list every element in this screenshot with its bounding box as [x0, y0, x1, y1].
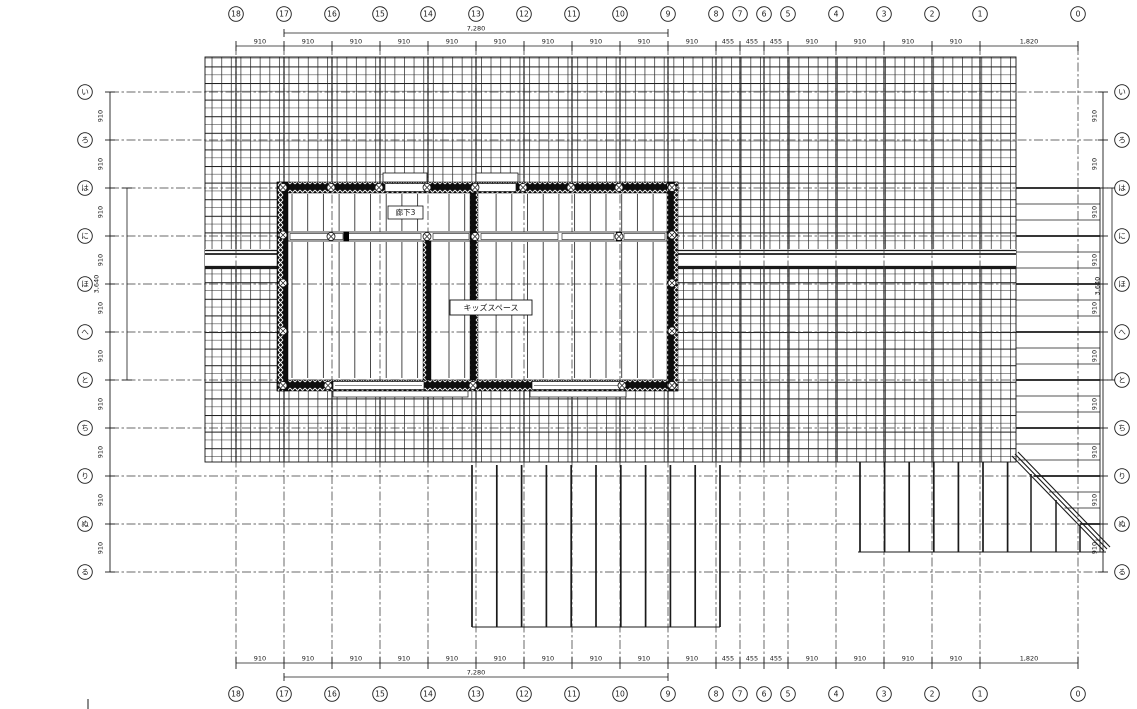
dim-text-right: 910 — [1091, 158, 1099, 170]
column-axis-bubble-top-3: 3 — [877, 7, 892, 22]
column-axis-bubble-bottom-12: 12 — [517, 687, 532, 702]
post-symbol — [375, 184, 383, 192]
post-symbol — [279, 231, 287, 239]
svg-text:1: 1 — [978, 690, 983, 699]
row-axis-bubble-left-8: り — [78, 469, 93, 484]
dim-text-left: 910 — [97, 254, 105, 266]
dim-overall-text-top: 7,280 — [467, 25, 486, 33]
svg-text:14: 14 — [423, 690, 433, 699]
column-axis-bubble-bottom-3: 3 — [877, 687, 892, 702]
row-axis-bubble-left-0: い — [78, 85, 93, 100]
svg-text:9: 9 — [666, 690, 671, 699]
svg-text:13: 13 — [471, 690, 481, 699]
dim-text-left: 910 — [97, 446, 105, 458]
svg-text:12: 12 — [519, 690, 529, 699]
column-axis-bubble-top-16: 16 — [325, 7, 340, 22]
row-axis-bubble-right-6: と — [1115, 373, 1130, 388]
svg-text:2: 2 — [930, 690, 935, 699]
svg-text:ぬ: ぬ — [81, 520, 89, 529]
svg-text:16: 16 — [327, 690, 337, 699]
dim-text-top: 910 — [302, 38, 314, 46]
row-axis-bubble-left-9: ぬ — [78, 517, 93, 532]
dim-text-right: 910 — [1091, 110, 1099, 122]
svg-text:へ: へ — [1118, 328, 1126, 337]
dim-text-top: 910 — [446, 38, 458, 46]
post-symbol — [668, 184, 676, 192]
dim-text-right: 910 — [1091, 542, 1099, 554]
row-axis-bubble-left-4: ほ — [78, 277, 93, 292]
column-axis-bubble-top-15: 15 — [373, 7, 388, 22]
svg-text:13: 13 — [471, 10, 481, 19]
dim-text-bottom: 910 — [302, 655, 314, 663]
entry-slab — [383, 173, 427, 182]
column-axis-bubble-top-0: 0 — [1071, 7, 1086, 22]
post-symbol — [423, 233, 431, 241]
row-axis-bubble-left-2: は — [78, 181, 93, 196]
dim-text-left: 910 — [97, 302, 105, 314]
svg-text:に: に — [81, 232, 89, 241]
row-axis-bubble-left-3: に — [78, 229, 93, 244]
dim-text-bottom: 910 — [902, 655, 914, 663]
svg-text:5: 5 — [786, 10, 791, 19]
dim-text-top: 455 — [746, 38, 758, 46]
dim-text-left: 910 — [97, 494, 105, 506]
column-axis-bubble-top-13: 13 — [469, 7, 484, 22]
post-symbol — [668, 327, 676, 335]
row-axis-bubble-right-0: い — [1115, 85, 1130, 100]
column-axis-bubble-bottom-11: 11 — [565, 687, 580, 702]
post-symbol — [324, 382, 332, 390]
post-symbol — [327, 233, 335, 241]
column-axis-bubble-bottom-18: 18 — [229, 687, 244, 702]
dim-text-top: 910 — [350, 38, 362, 46]
column-axis-bubble-top-7: 7 — [733, 7, 748, 22]
svg-text:9: 9 — [666, 10, 671, 19]
row-axis-bubble-left-7: ち — [78, 421, 93, 436]
svg-text:0: 0 — [1076, 10, 1081, 19]
column-axis-bubble-top-6: 6 — [757, 7, 772, 22]
svg-text:り: り — [81, 472, 89, 481]
row-axis-bubble-right-7: ち — [1115, 421, 1130, 436]
dim-text-right: 910 — [1091, 446, 1099, 458]
svg-text:3: 3 — [882, 10, 887, 19]
svg-text:と: と — [81, 376, 89, 385]
dim-text-bottom: 455 — [746, 655, 758, 663]
post-symbol — [327, 184, 335, 192]
dim-overall-text-right: 3,640 — [1094, 277, 1102, 296]
column-axis-bubble-bottom-10: 10 — [613, 687, 628, 702]
column-axis-bubble-top-12: 12 — [517, 7, 532, 22]
svg-text:7: 7 — [738, 690, 743, 699]
eaves-band — [678, 249, 1016, 266]
row-axis-bubble-right-8: り — [1115, 469, 1130, 484]
svg-text:ち: ち — [81, 424, 89, 433]
dim-text-right: 910 — [1091, 254, 1099, 266]
svg-text:ち: ち — [1118, 424, 1126, 433]
eaves-band — [205, 249, 277, 266]
dim-text-left: 910 — [97, 542, 105, 554]
dim-text-bottom: 910 — [542, 655, 554, 663]
svg-text:ほ: ほ — [81, 280, 89, 289]
column-axis-bubble-top-4: 4 — [829, 7, 844, 22]
post-symbol — [279, 184, 287, 192]
dim-text-bottom: 1,820 — [1020, 655, 1039, 663]
column-axis-bubble-top-17: 17 — [277, 7, 292, 22]
entry-slab — [333, 391, 468, 397]
dim-text-left: 910 — [97, 350, 105, 362]
dim-text-bottom: 455 — [770, 655, 782, 663]
post-symbol — [423, 184, 431, 192]
svg-text:15: 15 — [375, 10, 385, 19]
column-axis-bubble-bottom-0: 0 — [1071, 687, 1086, 702]
dim-text-bottom: 910 — [638, 655, 650, 663]
dim-text-bottom: 910 — [398, 655, 410, 663]
post-symbol — [519, 184, 527, 192]
post-symbol — [471, 184, 479, 192]
dim-text-right: 910 — [1091, 398, 1099, 410]
svg-text:6: 6 — [762, 690, 767, 699]
column-axis-bubble-bottom-1: 1 — [973, 687, 988, 702]
row-axis-bubble-right-4: ほ — [1115, 277, 1130, 292]
dim-text-top: 910 — [902, 38, 914, 46]
svg-text:10: 10 — [615, 10, 625, 19]
dim-text-bottom: 910 — [806, 655, 818, 663]
dim-text-right: 910 — [1091, 302, 1099, 314]
svg-text:2: 2 — [930, 10, 935, 19]
dim-text-top: 910 — [806, 38, 818, 46]
dim-text-top: 910 — [398, 38, 410, 46]
row-axis-bubble-right-9: ぬ — [1115, 517, 1130, 532]
post-symbol — [279, 279, 287, 287]
column-axis-bubble-bottom-15: 15 — [373, 687, 388, 702]
column-axis-bubble-top-18: 18 — [229, 7, 244, 22]
dim-text-top: 455 — [722, 38, 734, 46]
svg-text:る: る — [1118, 568, 1126, 577]
column-axis-bubble-top-2: 2 — [925, 7, 940, 22]
column-axis-bubble-bottom-17: 17 — [277, 687, 292, 702]
dim-text-bottom: 910 — [446, 655, 458, 663]
post-symbol — [668, 382, 676, 390]
svg-text:り: り — [1118, 472, 1126, 481]
svg-text:ぬ: ぬ — [1118, 520, 1126, 529]
svg-text:11: 11 — [567, 690, 577, 699]
column-axis-bubble-bottom-13: 13 — [469, 687, 484, 702]
floor-plan-svg: 廊下3キッズスペース910910910910910910910910910910… — [0, 0, 1137, 709]
post-symbol — [615, 184, 623, 192]
column-axis-bubble-bottom-5: 5 — [781, 687, 796, 702]
post-symbol — [279, 382, 287, 390]
svg-text:ほ: ほ — [1118, 280, 1126, 289]
row-axis-bubble-right-3: に — [1115, 229, 1130, 244]
svg-text:8: 8 — [714, 10, 719, 19]
column-axis-bubble-bottom-8: 8 — [709, 687, 724, 702]
column-axis-bubble-bottom-9: 9 — [661, 687, 676, 702]
post-symbol — [668, 231, 676, 239]
column-axis-bubble-bottom-16: 16 — [325, 687, 340, 702]
svg-text:18: 18 — [231, 690, 241, 699]
column-axis-bubble-bottom-14: 14 — [421, 687, 436, 702]
dim-text-bottom: 910 — [950, 655, 962, 663]
svg-text:い: い — [81, 88, 89, 97]
svg-text:1: 1 — [978, 10, 983, 19]
svg-text:3: 3 — [882, 690, 887, 699]
row-axis-bubble-right-2: は — [1115, 181, 1130, 196]
svg-text:る: る — [81, 568, 89, 577]
dim-text-left: 910 — [97, 206, 105, 218]
svg-text:18: 18 — [231, 10, 241, 19]
svg-text:10: 10 — [615, 690, 625, 699]
post-symbol — [615, 233, 623, 241]
dim-text-bottom: 910 — [494, 655, 506, 663]
svg-text:15: 15 — [375, 690, 385, 699]
entry-slab — [476, 173, 518, 182]
column-axis-bubble-top-11: 11 — [565, 7, 580, 22]
room-label-kids-space: キッズスペース — [463, 303, 518, 313]
column-axis-bubble-top-14: 14 — [421, 7, 436, 22]
svg-text:7: 7 — [738, 10, 743, 19]
svg-text:は: は — [1118, 184, 1126, 193]
dim-text-top: 910 — [590, 38, 602, 46]
dim-text-left: 910 — [97, 110, 105, 122]
svg-text:は: は — [81, 184, 89, 193]
post-symbol — [618, 382, 626, 390]
dim-text-bottom: 910 — [254, 655, 266, 663]
dim-text-top: 910 — [254, 38, 266, 46]
dim-text-left: 910 — [97, 158, 105, 170]
svg-text:ろ: ろ — [1118, 136, 1126, 145]
dim-text-top: 910 — [638, 38, 650, 46]
dim-text-top: 910 — [854, 38, 866, 46]
dim-text-top: 910 — [950, 38, 962, 46]
column-axis-bubble-bottom-4: 4 — [829, 687, 844, 702]
dim-text-top: 910 — [494, 38, 506, 46]
dim-overall-text-left: 3,640 — [93, 275, 101, 294]
column-axis-bubble-top-10: 10 — [613, 7, 628, 22]
column-axis-bubble-bottom-7: 7 — [733, 687, 748, 702]
svg-text:4: 4 — [834, 10, 839, 19]
dim-text-top: 910 — [542, 38, 554, 46]
column-axis-bubble-bottom-6: 6 — [757, 687, 772, 702]
post-symbol — [567, 184, 575, 192]
dim-text-top: 455 — [770, 38, 782, 46]
dim-text-right: 910 — [1091, 206, 1099, 218]
dim-text-bottom: 910 — [590, 655, 602, 663]
drawing-canvas: 廊下3キッズスペース910910910910910910910910910910… — [0, 0, 1137, 709]
svg-text:8: 8 — [714, 690, 719, 699]
dim-text-top: 910 — [686, 38, 698, 46]
column-axis-bubble-top-1: 1 — [973, 7, 988, 22]
opening — [478, 184, 516, 192]
opening — [385, 184, 425, 192]
row-axis-bubble-left-10: る — [78, 565, 93, 580]
svg-text:い: い — [1118, 88, 1126, 97]
post-symbol — [469, 382, 477, 390]
svg-text:と: と — [1118, 376, 1126, 385]
svg-text:5: 5 — [786, 690, 791, 699]
svg-text:16: 16 — [327, 10, 337, 19]
dim-text-right: 910 — [1091, 494, 1099, 506]
wall-interior-b — [470, 193, 478, 380]
partition-post — [344, 232, 350, 242]
row-axis-bubble-left-1: ろ — [78, 133, 93, 148]
post-symbol — [471, 233, 479, 241]
svg-text:17: 17 — [279, 10, 289, 19]
column-axis-bubble-top-5: 5 — [781, 7, 796, 22]
svg-text:に: に — [1118, 232, 1126, 241]
row-axis-bubble-left-5: へ — [78, 325, 93, 340]
dim-overall-text-bottom: 7,280 — [467, 669, 486, 677]
dim-text-right: 910 — [1091, 350, 1099, 362]
svg-text:14: 14 — [423, 10, 433, 19]
row-axis-bubble-right-1: ろ — [1115, 133, 1130, 148]
column-axis-bubble-top-8: 8 — [709, 7, 724, 22]
column-axis-bubble-top-9: 9 — [661, 7, 676, 22]
svg-text:0: 0 — [1076, 690, 1081, 699]
svg-text:6: 6 — [762, 10, 767, 19]
dim-text-bottom: 910 — [686, 655, 698, 663]
post-symbol — [668, 279, 676, 287]
svg-text:4: 4 — [834, 690, 839, 699]
svg-text:12: 12 — [519, 10, 529, 19]
column-axis-bubble-bottom-2: 2 — [925, 687, 940, 702]
post-symbol — [279, 327, 287, 335]
plan-generated-geometry: 廊下3キッズスペース910910910910910910910910910910… — [78, 7, 1130, 709]
dim-text-bottom: 910 — [350, 655, 362, 663]
svg-text:17: 17 — [279, 690, 289, 699]
entry-slab — [530, 391, 626, 397]
room-label-corridor: 廊下3 — [396, 207, 416, 217]
dim-text-top: 1,820 — [1020, 38, 1039, 46]
dim-text-bottom: 455 — [722, 655, 734, 663]
dim-text-left: 910 — [97, 398, 105, 410]
row-axis-bubble-right-5: へ — [1115, 325, 1130, 340]
wall-interior-a — [423, 241, 431, 380]
svg-text:11: 11 — [567, 10, 577, 19]
svg-text:へ: へ — [81, 328, 89, 337]
dim-text-bottom: 910 — [854, 655, 866, 663]
row-axis-bubble-left-6: と — [78, 373, 93, 388]
svg-text:ろ: ろ — [81, 136, 89, 145]
row-axis-bubble-right-10: る — [1115, 565, 1130, 580]
